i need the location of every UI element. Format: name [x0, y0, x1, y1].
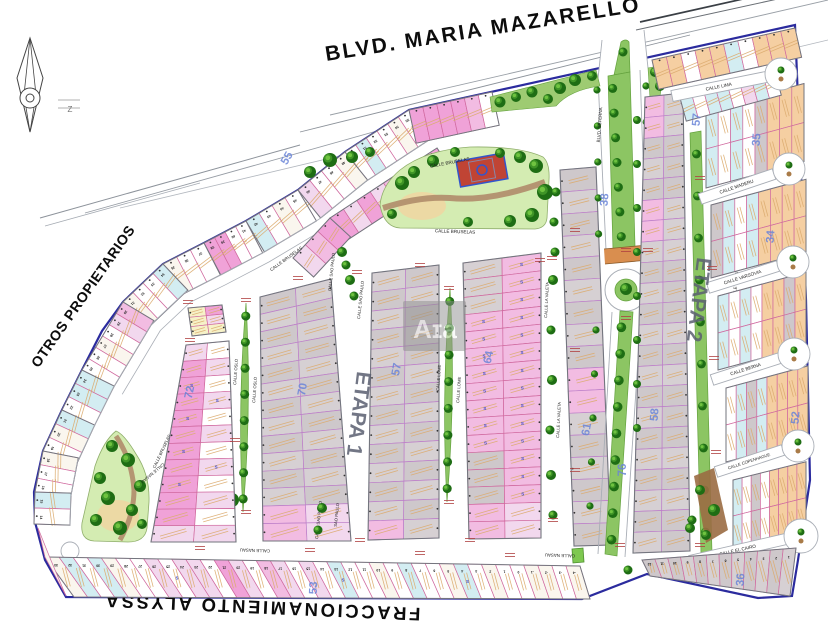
svg-text:14: 14 [39, 515, 43, 519]
svg-text:1: 1 [788, 555, 790, 559]
svg-text:23: 23 [194, 565, 198, 569]
svg-text:CALLE NASAU: CALLE NASAU [240, 547, 270, 553]
svg-text:S: S [484, 441, 487, 446]
svg-text:Z: Z [68, 105, 73, 114]
svg-text:30: 30 [96, 564, 100, 568]
svg-text:35: 35 [750, 132, 763, 146]
svg-text:S: S [483, 406, 486, 411]
svg-text:12: 12 [648, 562, 652, 566]
svg-text:S: S [521, 403, 524, 408]
svg-text:S: S [175, 576, 178, 581]
svg-text:S: S [520, 297, 523, 302]
svg-text:8: 8 [405, 568, 407, 572]
svg-text:28: 28 [124, 564, 128, 568]
svg-text:-2: -2 [545, 570, 548, 574]
svg-text:S: S [520, 262, 523, 267]
svg-text:2: 2 [775, 556, 777, 560]
svg-text:25: 25 [166, 565, 170, 569]
svg-text:11: 11 [362, 568, 366, 572]
svg-text:3: 3 [475, 569, 477, 573]
svg-text:76: 76 [617, 464, 629, 477]
svg-text:S: S [521, 456, 524, 461]
svg-text:32: 32 [68, 563, 72, 567]
svg-text:S: S [186, 416, 189, 421]
svg-text:52: 52 [789, 411, 802, 425]
svg-text:5: 5 [447, 569, 449, 573]
svg-text:9: 9 [391, 568, 393, 572]
svg-text:19: 19 [250, 566, 254, 570]
svg-text:20: 20 [236, 566, 240, 570]
svg-text:31: 31 [82, 563, 86, 567]
svg-text:S: S [521, 439, 524, 444]
svg-text:-4: -4 [573, 571, 576, 575]
svg-text:S: S [521, 386, 524, 391]
svg-text:S: S [483, 371, 486, 376]
svg-text:CALLE NASAU: CALLE NASAU [545, 552, 575, 558]
svg-text:36: 36 [734, 573, 747, 587]
svg-text:58: 58 [648, 407, 661, 421]
svg-text:S: S [182, 449, 185, 454]
svg-text:0: 0 [517, 570, 519, 574]
svg-text:S: S [215, 465, 218, 470]
svg-text:22: 22 [208, 565, 212, 569]
svg-text:29: 29 [110, 564, 114, 568]
svg-text:15: 15 [39, 499, 43, 503]
svg-text:13: 13 [334, 567, 338, 571]
svg-text:S: S [520, 333, 523, 338]
svg-text:18: 18 [264, 566, 268, 570]
svg-text:-3: -3 [559, 571, 562, 575]
svg-text:8: 8 [699, 560, 701, 564]
svg-text:S: S [520, 350, 523, 355]
svg-text:S: S [466, 579, 469, 584]
svg-text:6: 6 [433, 569, 435, 573]
svg-text:-1: -1 [531, 570, 534, 574]
svg-text:10: 10 [376, 568, 380, 572]
svg-text:9: 9 [686, 560, 688, 564]
svg-text:12: 12 [348, 567, 352, 571]
svg-text:S: S [520, 315, 523, 320]
svg-text:15: 15 [306, 567, 310, 571]
svg-text:S: S [483, 388, 486, 393]
svg-text:S: S [521, 368, 524, 373]
svg-text:27: 27 [138, 564, 142, 568]
svg-text:S: S [482, 319, 485, 324]
svg-text:6: 6 [724, 558, 726, 562]
svg-text:S: S [520, 280, 523, 285]
svg-text:S: S [484, 423, 487, 428]
svg-text:16: 16 [292, 567, 296, 571]
svg-text:S: S [482, 336, 485, 341]
svg-text:17: 17 [278, 566, 282, 570]
svg-text:10: 10 [673, 561, 677, 565]
svg-text:57: 57 [390, 362, 404, 377]
svg-text:34: 34 [764, 229, 777, 243]
svg-text:21: 21 [222, 565, 226, 569]
svg-text:1: 1 [503, 570, 505, 574]
svg-text:33: 33 [54, 563, 58, 567]
svg-text:S: S [216, 398, 219, 403]
svg-text:70: 70 [296, 382, 310, 397]
svg-text:7: 7 [419, 568, 421, 572]
svg-text:26: 26 [152, 564, 156, 568]
svg-text:S: S [521, 492, 524, 497]
svg-text:S: S [521, 474, 524, 479]
svg-text:3: 3 [762, 557, 764, 561]
svg-text:38: 38 [599, 192, 612, 206]
svg-text:S: S [178, 482, 181, 487]
svg-text:24: 24 [180, 565, 184, 569]
svg-text:14: 14 [320, 567, 324, 571]
svg-text:57: 57 [690, 113, 703, 127]
svg-text:Aɪa: Aɪa [413, 314, 457, 344]
svg-text:S: S [521, 421, 524, 426]
svg-text:4: 4 [461, 569, 463, 573]
svg-text:S: S [341, 578, 344, 583]
svg-text:2: 2 [489, 569, 491, 573]
svg-text:7: 7 [712, 559, 714, 563]
svg-text:11: 11 [660, 562, 664, 566]
svg-text:5: 5 [737, 558, 739, 562]
svg-text:4: 4 [750, 557, 752, 561]
svg-text:53: 53 [308, 581, 320, 594]
